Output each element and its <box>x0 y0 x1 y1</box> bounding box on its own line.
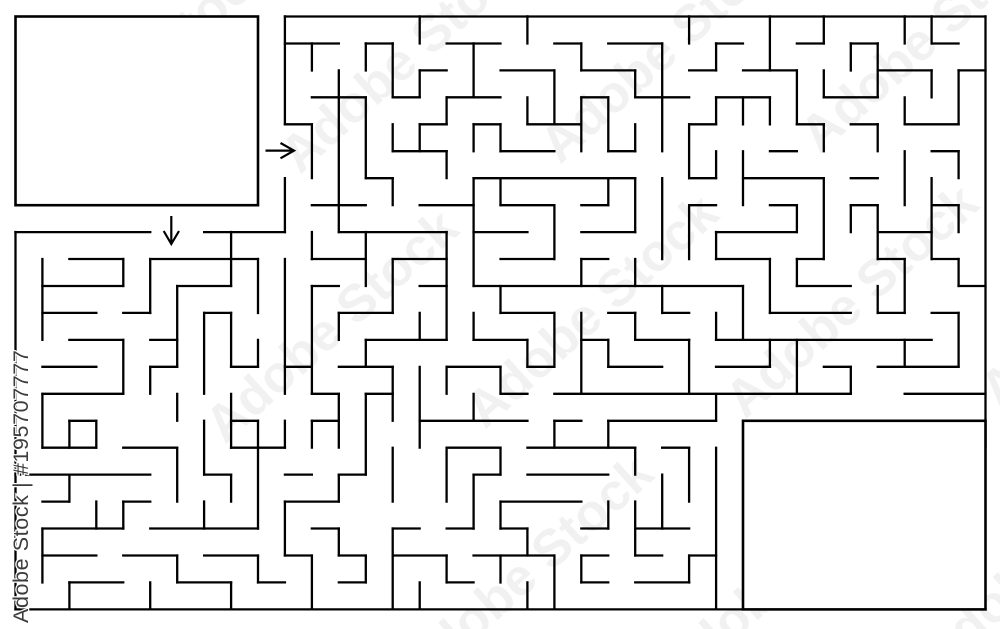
svg-text:Adobe Stock | #195707777: Adobe Stock | #195707777 <box>9 350 33 623</box>
